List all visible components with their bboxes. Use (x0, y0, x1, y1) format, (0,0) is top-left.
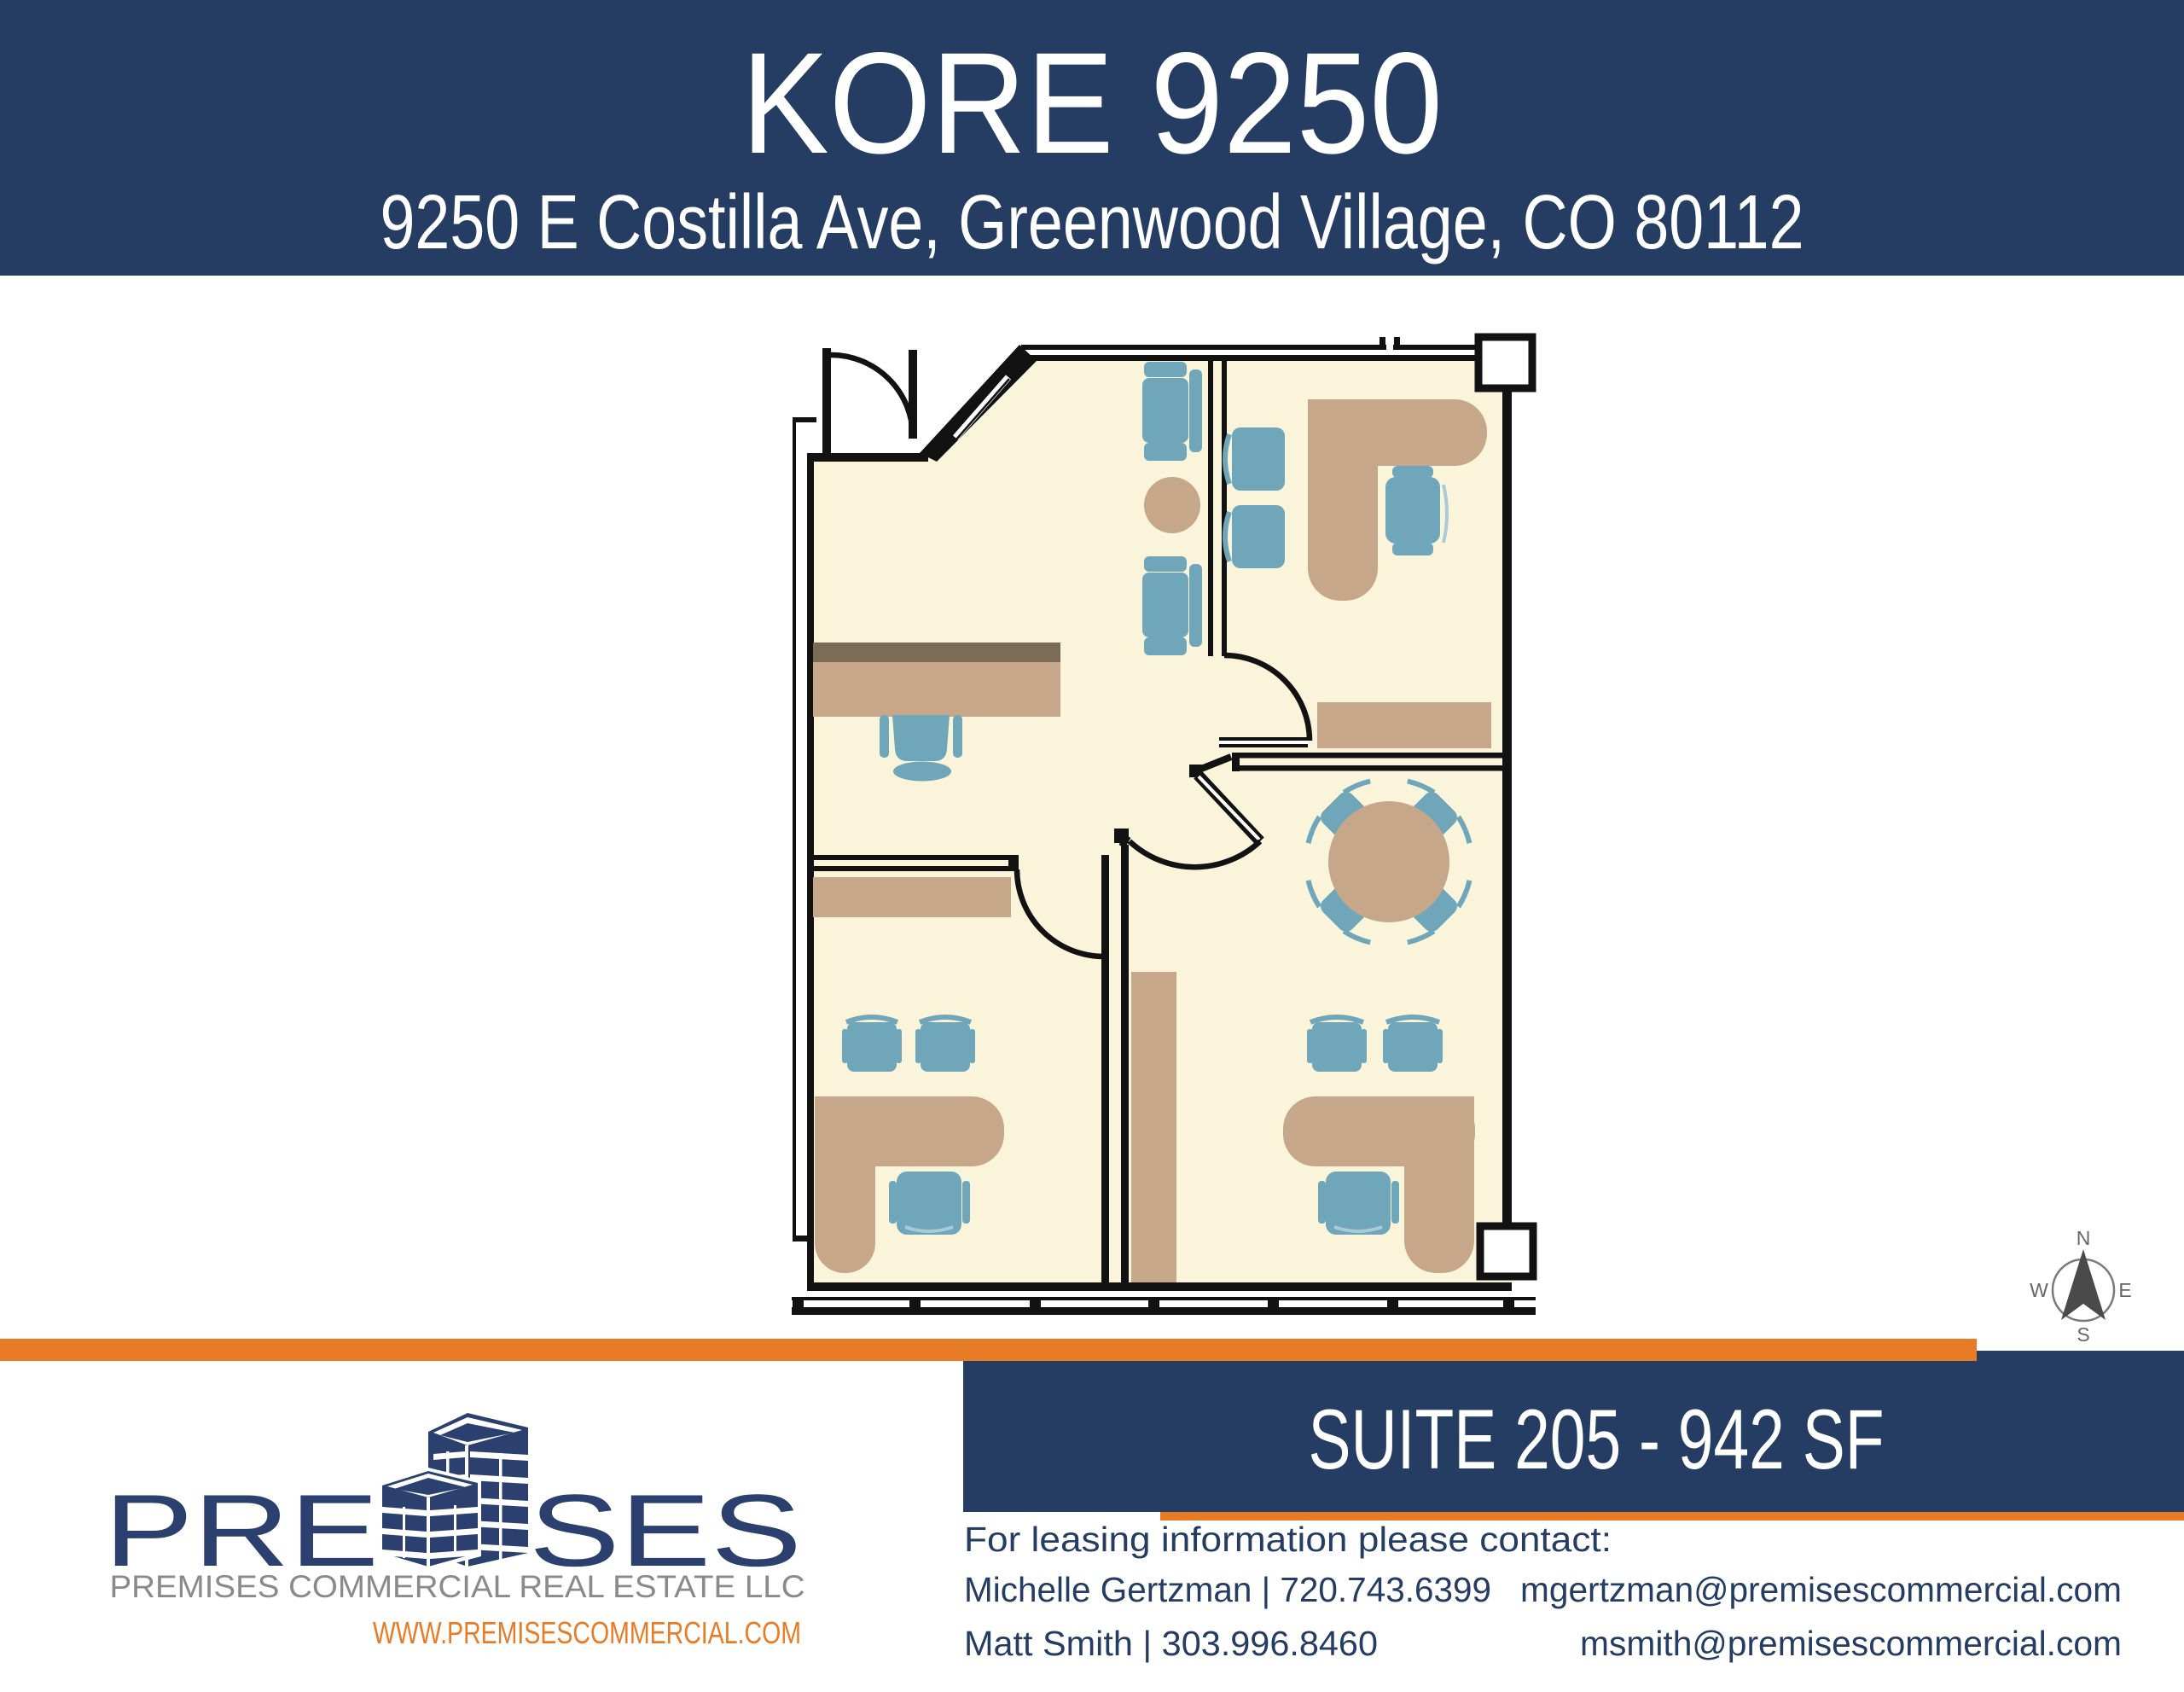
svg-text:S: S (2077, 1323, 2089, 1346)
svg-text:W: W (2030, 1279, 2048, 1301)
svg-text:For leasing information please: For leasing information please contact: (964, 1520, 1612, 1559)
svg-text:mgertzman@premisescommercial.c: mgertzman@premisescommercial.com (1520, 1570, 2122, 1609)
svg-text:9250 E Costilla Ave, Greenwood: 9250 E Costilla Ave, Greenwood Village, … (380, 180, 1804, 265)
svg-text:PREMISES COMMERCIAL REAL ESTAT: PREMISES COMMERCIAL REAL ESTATE LLC (110, 1569, 805, 1604)
svg-text:KORE 9250: KORE 9250 (741, 22, 1443, 183)
svg-text:Matt Smith | 303.996.8460: Matt Smith | 303.996.8460 (964, 1624, 1378, 1663)
svg-text:msmith@premisescommercial.com: msmith@premisescommercial.com (1580, 1624, 2122, 1663)
svg-text:E: E (2118, 1279, 2131, 1301)
svg-text:WWW.PREMISESCOMMERCIAL.COM: WWW.PREMISESCOMMERCIAL.COM (373, 1615, 801, 1650)
svg-text:Michelle Gertzman | 720.743.63: Michelle Gertzman | 720.743.6399 (964, 1570, 1491, 1609)
svg-text:N: N (2077, 1227, 2091, 1249)
svg-text:SUITE 205 - 942 SF: SUITE 205 - 942 SF (1309, 1392, 1885, 1486)
